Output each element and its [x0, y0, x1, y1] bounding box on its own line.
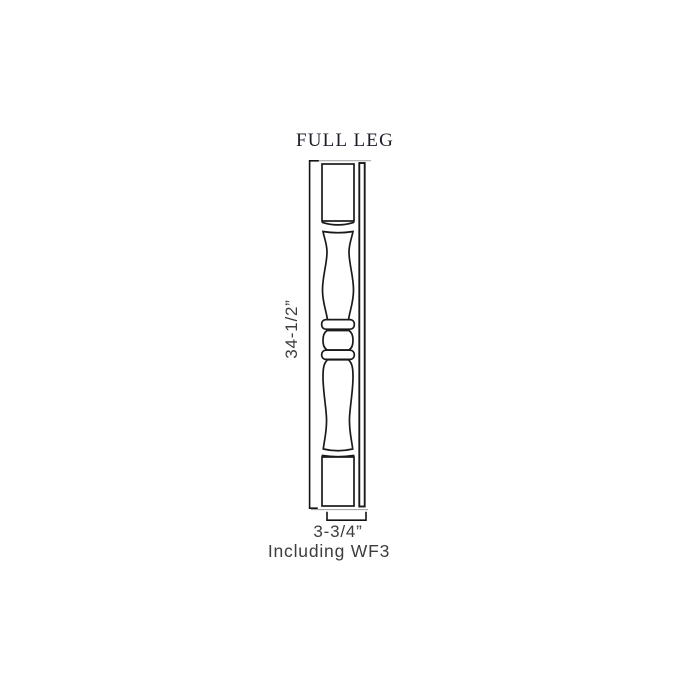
leg-lower-ring [322, 350, 355, 359]
leg-upper-ring [322, 320, 355, 330]
full-leg-drawing [0, 0, 700, 700]
width-dimension-bracket [327, 513, 366, 521]
leg-top-disc-line [322, 222, 353, 225]
height-dimension-label: 34-1/2” [282, 268, 304, 390]
width-note-label: Including WF3 [229, 541, 429, 563]
diagram-page: FULL LEG [0, 0, 700, 700]
leg-center-bead [323, 331, 353, 351]
leg-top-block [322, 164, 354, 221]
leg-upper-vase [323, 232, 354, 321]
wf3-filler-strip [359, 163, 364, 507]
height-dimension-bracket [310, 161, 318, 508]
leg-outline [322, 163, 365, 507]
leg-lower-vase [323, 360, 353, 451]
leg-foot-block [322, 457, 354, 506]
